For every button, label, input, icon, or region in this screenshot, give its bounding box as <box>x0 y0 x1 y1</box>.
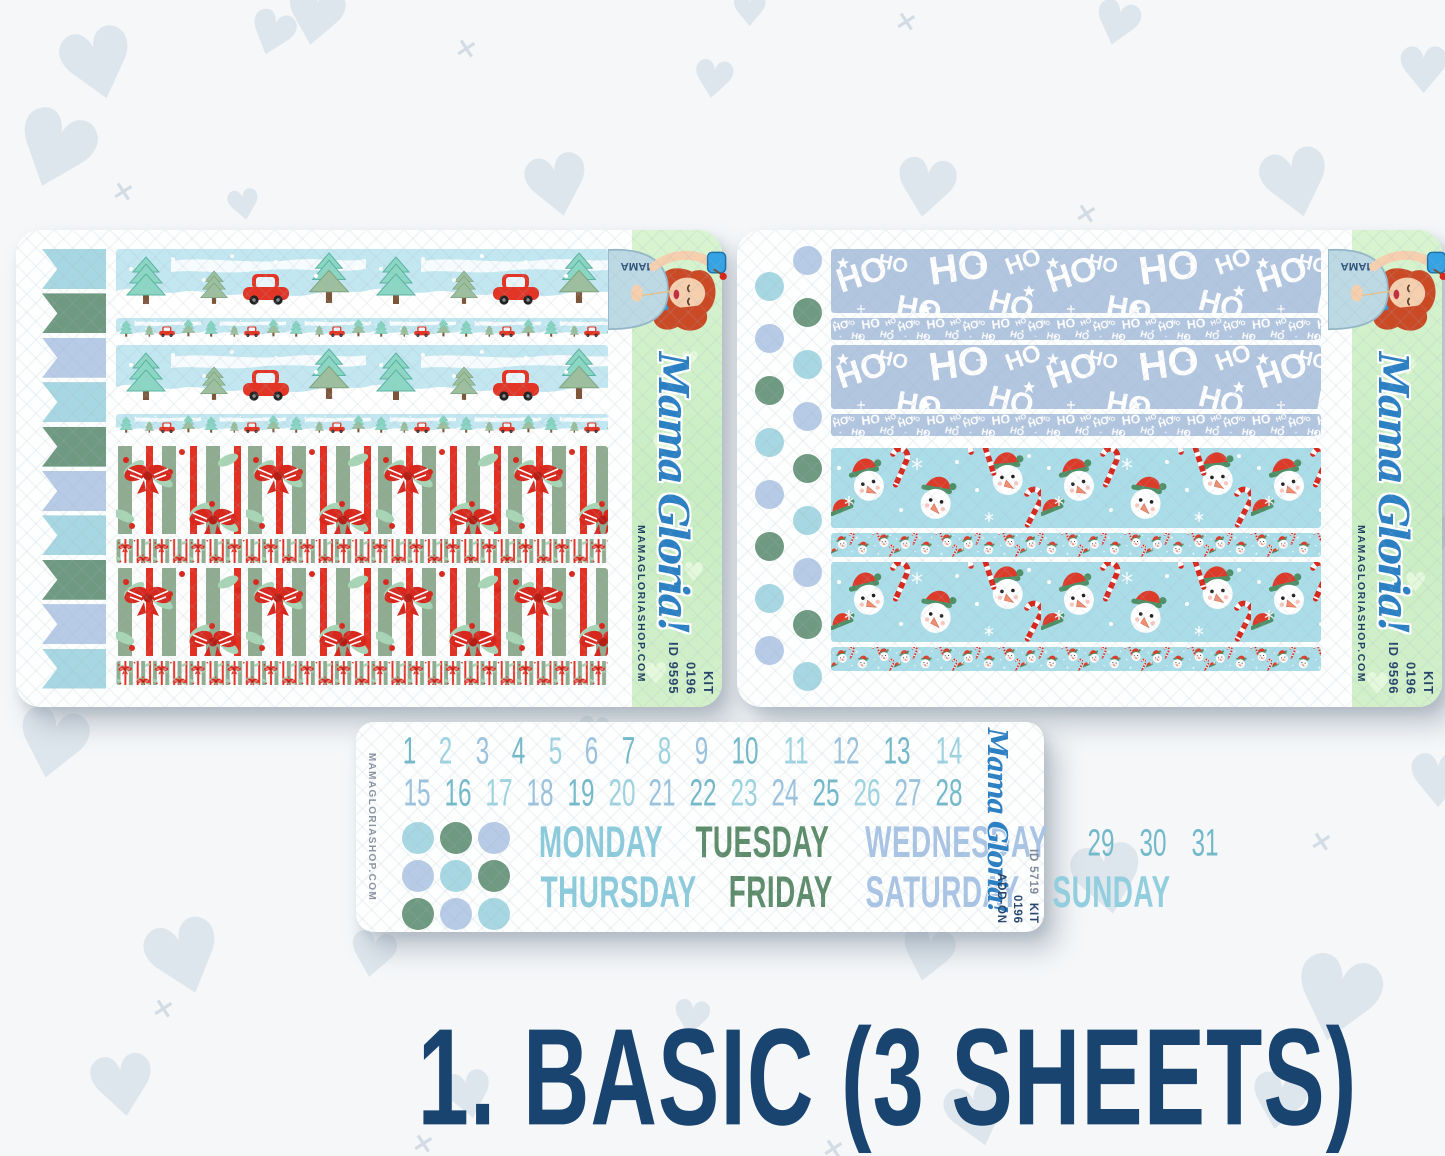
mama-gloria-character <box>608 226 728 346</box>
date-sticker: 11 <box>783 729 808 773</box>
washi-strip-bows-wide <box>116 446 608 534</box>
washi-strip-hoho-thin <box>831 414 1321 436</box>
washi-strip-bows-thin <box>116 661 608 685</box>
addon-date-sheet: MAMAGLORIASHOP.COM 1234567891011121314 1… <box>356 722 1044 932</box>
dot-sticker <box>440 822 472 854</box>
date-sticker: 23 <box>731 771 758 815</box>
dot-sticker <box>755 584 784 613</box>
x-mark-icon: × <box>1307 826 1335 857</box>
washi-strip-hoho-wide <box>831 249 1321 313</box>
dot-sticker <box>793 454 822 483</box>
flag-sticker <box>42 471 106 511</box>
dot-sticker <box>755 428 784 457</box>
date-sticker: 22 <box>690 771 717 815</box>
date-sticker: 7 <box>621 729 635 773</box>
date-sticker: 21 <box>649 771 676 815</box>
washi-strip-winter-thin <box>116 318 608 340</box>
flag-sticker <box>42 427 106 467</box>
dot-sticker <box>793 350 822 379</box>
kit-label: KIT <box>1027 903 1039 924</box>
kit-number: 0196 <box>1402 525 1420 695</box>
dot-sticker <box>402 860 434 892</box>
flag-sticker <box>42 293 106 333</box>
kit-label: KIT <box>699 525 717 695</box>
date-sticker: 2 <box>439 729 453 773</box>
date-sticker: 15 <box>404 771 431 815</box>
dot-sticker <box>440 898 472 930</box>
date-sticker: 4 <box>512 729 526 773</box>
right-sticker-sheet: ♥ ♥ ♥ ♥ Mama Gloria! MAMAGLORIASHOP.COM … <box>737 230 1442 707</box>
day-sticker: MONDAY <box>539 817 663 868</box>
date-sticker: 9 <box>694 729 708 773</box>
brand-strip: ♥ ♥ ♥ ♥ Mama Gloria! MAMAGLORIASHOP.COM … <box>627 230 722 707</box>
date-sticker: 24 <box>772 771 799 815</box>
dot-sticker <box>402 898 434 930</box>
left-sticker-sheet: ♥ ♥ ♥ ♥ Mama Gloria! MAMAGLORIASHOP.COM … <box>16 230 722 707</box>
date-sticker: 26 <box>853 771 880 815</box>
dot-sticker <box>793 506 822 535</box>
heart-icon: ♥ <box>127 899 243 1022</box>
date-stickers-row-1: 1234567891011121314 <box>402 736 964 767</box>
washi-strip-winter-wide <box>116 345 608 409</box>
dot-sticker <box>793 610 822 639</box>
washi-strip-winter-thin <box>116 414 608 436</box>
dot-sticker <box>440 860 472 892</box>
dot-sticker <box>793 558 822 587</box>
day-sticker: SUNDAY <box>1053 867 1171 918</box>
kit-id-labels: KIT 0196 ID 9596 <box>1384 525 1437 695</box>
washi-strip-snowman-thin <box>831 647 1321 671</box>
date-sticker: 1 <box>403 729 417 773</box>
flag-stickers-column <box>42 249 106 693</box>
date-sticker: 3 <box>476 729 490 773</box>
sheet-id: ID 5719 <box>1027 849 1039 895</box>
date-stickers-row-2: 1516171819202122232425262728 <box>402 778 964 809</box>
washi-strip-hoho-thin <box>831 318 1321 340</box>
heart-icon: ♥ <box>1245 131 1347 240</box>
date-sticker: 30 <box>1139 821 1166 865</box>
flag-sticker <box>42 338 106 378</box>
date-sticker: 31 <box>1192 821 1219 865</box>
heart-icon: ♥ <box>80 1040 166 1134</box>
date-sticker: 29 <box>1087 821 1114 865</box>
addon-label: ADD-ON <box>993 739 1009 924</box>
date-stickers-extra: 293031 <box>1086 828 1220 859</box>
date-sticker: 13 <box>884 729 911 773</box>
day-sticker: TUESDAY <box>695 817 829 868</box>
day-stickers-row-1: MONDAYTUESDAYWEDNESDAY293031 <box>532 818 1220 868</box>
x-mark-icon: × <box>1072 198 1100 229</box>
dot-sticker <box>402 822 434 854</box>
washi-strips-right <box>831 249 1321 671</box>
dot-stickers-column <box>751 246 827 691</box>
dot-sticker <box>478 822 510 854</box>
x-mark-icon: × <box>452 33 480 64</box>
brand-url: MAMAGLORIASHOP.COM <box>1355 525 1367 683</box>
flag-sticker <box>42 382 106 422</box>
washi-strip-bows-wide <box>116 568 608 656</box>
brand-url: MAMAGLORIASHOP.COM <box>635 525 647 683</box>
washi-strip-snowman-thin <box>831 533 1321 557</box>
dot-sticker <box>755 272 784 301</box>
heart-icon: ♥ <box>885 145 967 234</box>
dot-sticker <box>755 532 784 561</box>
heart-icon: ♥ <box>222 182 266 230</box>
date-sticker: 12 <box>833 729 860 773</box>
date-sticker: 14 <box>935 729 962 773</box>
date-sticker: 20 <box>608 771 635 815</box>
date-sticker: 6 <box>585 729 599 773</box>
brand-url: MAMAGLORIASHOP.COM <box>366 753 377 901</box>
washi-strip-snowman-wide <box>831 448 1321 528</box>
heart-icon: ♥ <box>1395 40 1445 104</box>
heart-icon: ♥ <box>1 692 103 801</box>
date-sticker: 25 <box>813 771 840 815</box>
kit-id-labels: KIT 0196 ID 9595 <box>664 525 717 695</box>
heart-icon: ♥ <box>1083 0 1150 61</box>
day-sticker: THURSDAY <box>541 867 697 918</box>
flag-sticker <box>42 604 106 644</box>
washi-strip-snowman-wide <box>831 562 1321 642</box>
flag-sticker <box>42 560 106 600</box>
date-sticker: 8 <box>658 729 672 773</box>
washi-strip-winter-wide <box>116 249 608 313</box>
kit-number: 0196 <box>1009 739 1025 924</box>
dot-sticker <box>478 898 510 930</box>
flag-sticker <box>42 649 106 689</box>
dot-sticker <box>755 324 784 353</box>
dot-stickers-grid <box>402 822 510 930</box>
brand-strip: ♥ ♥ ♥ ♥ Mama Gloria! MAMAGLORIASHOP.COM … <box>1347 230 1442 707</box>
dot-sticker <box>793 246 822 275</box>
date-sticker: 17 <box>485 771 512 815</box>
washi-strip-bows-thin <box>116 539 608 563</box>
heart-icon: ♥ <box>1405 745 1445 819</box>
sheet-id: ID 9595 <box>664 525 682 695</box>
kit-id-labels: ID 5719 KIT 0196 ADD-ON <box>993 739 1041 924</box>
date-sticker: 18 <box>526 771 553 815</box>
dot-sticker <box>793 298 822 327</box>
product-image: ♥♥♥♥♥♥♥♥♥♥♥♥♥♥♥♥♥♥♥♥♥♥♥♥♥♥♥♥♥♥××××××××××… <box>0 0 1445 1156</box>
kit-number: 0196 <box>682 525 700 695</box>
day-stickers-row-2: THURSDAYFRIDAYSATURDAYSUNDAY <box>532 868 1220 918</box>
x-mark-icon: × <box>109 176 137 207</box>
washi-strip-hoho-wide <box>831 345 1321 409</box>
kit-label: KIT <box>1419 525 1437 695</box>
heart-icon: ♥ <box>512 138 603 236</box>
caption-title: 1. BASIC (3 SHEETS) <box>358 998 1417 1156</box>
heart-icon: ♥ <box>730 0 769 34</box>
day-sticker: FRIDAY <box>729 867 833 918</box>
dot-sticker <box>793 662 822 691</box>
days-and-dots: MONDAYTUESDAYWEDNESDAY293031 THURSDAYFRI… <box>402 818 1220 930</box>
heart-icon: ♥ <box>687 52 740 110</box>
date-sticker: 27 <box>894 771 921 815</box>
dot-sticker <box>793 402 822 431</box>
date-sticker: 28 <box>935 771 962 815</box>
heart-icon: ♥ <box>0 87 116 217</box>
flag-sticker <box>42 249 106 289</box>
x-mark-icon: × <box>892 6 920 37</box>
date-sticker: 19 <box>567 771 594 815</box>
washi-strips-left <box>116 249 608 685</box>
date-sticker: 10 <box>732 729 759 773</box>
sheet-id: ID 9596 <box>1384 525 1402 695</box>
mama-gloria-character <box>1328 226 1445 346</box>
dot-sticker <box>755 636 784 665</box>
dot-sticker <box>478 860 510 892</box>
dot-sticker <box>755 480 784 509</box>
dot-sticker <box>755 376 784 405</box>
date-sticker: 5 <box>549 729 563 773</box>
flag-sticker <box>42 515 106 555</box>
date-sticker: 16 <box>444 771 471 815</box>
